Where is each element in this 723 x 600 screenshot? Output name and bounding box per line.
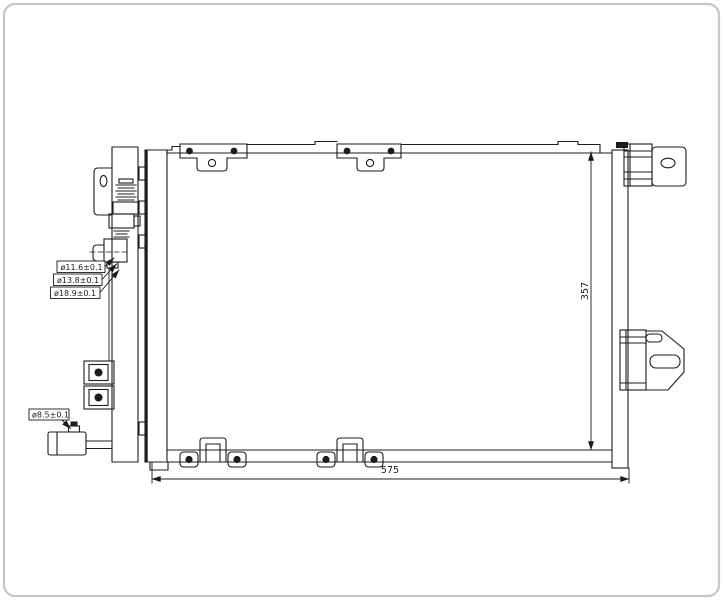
- elbow-port: [93, 245, 104, 261]
- port-hole-dot: [95, 394, 103, 402]
- mounting-hole-dot: [185, 456, 192, 463]
- left-header-tank: [139, 150, 168, 470]
- oval-hole: [100, 175, 107, 186]
- port-label-drier: ø8.5±0.1: [29, 409, 71, 429]
- port-diameter-label: ø18.9±0.1: [54, 289, 96, 298]
- drier-link: [86, 441, 112, 449]
- bottom-clip-right: [317, 438, 383, 467]
- thread-lines: [114, 231, 129, 237]
- bracket-slot: [650, 355, 680, 368]
- dimension-height: 357: [580, 152, 591, 450]
- mounting-hole-dot: [233, 456, 240, 463]
- mounting-hole-dot: [186, 148, 193, 155]
- width-value: 575: [381, 465, 399, 476]
- condenser-technical-drawing: ø11.6±0.1 ø13.8±0.1 ø18.9±0.1 ø8.5±0.1 3…: [0, 0, 723, 600]
- block-fitting-lower: [84, 386, 114, 409]
- block-fitting-upper: [84, 361, 114, 384]
- tab-hole: [208, 159, 215, 166]
- mounting-hole-dot: [370, 456, 377, 463]
- mounting-hole-dot: [322, 456, 329, 463]
- port-diameter-label: ø8.5±0.1: [32, 411, 69, 420]
- oval-slot: [661, 158, 675, 168]
- bracket-pin: [646, 334, 662, 342]
- receiver-drier: [48, 422, 112, 456]
- mounting-tab-oval: [94, 168, 112, 215]
- leader-line: [100, 270, 119, 293]
- bottom-clip-left: [180, 438, 246, 467]
- tank-foot: [145, 462, 168, 470]
- condenser-core: [167, 153, 612, 462]
- mounting-bracket-top-right: [616, 142, 686, 186]
- tab-hole: [366, 159, 373, 166]
- mounting-hole-dot: [344, 148, 351, 155]
- mounting-bracket-top-left: [180, 144, 247, 171]
- dimension-width: 575: [152, 462, 629, 483]
- right-header-tank: [612, 150, 628, 468]
- inlet-fitting: [113, 179, 139, 214]
- mounting-bracket-mid-right: [620, 330, 684, 390]
- port-diameter-label: ø13.8±0.1: [57, 276, 99, 285]
- mounting-bracket-top-center: [337, 144, 401, 171]
- thread-lines: [116, 185, 136, 200]
- drier-port-cap: [71, 422, 78, 427]
- port-hole-dot: [95, 369, 103, 377]
- port-diameter-label: ø11.6±0.1: [61, 263, 103, 272]
- leader-line: [62, 420, 71, 429]
- port-label-small: ø11.6±0.1: [57, 258, 114, 273]
- height-value: 357: [580, 282, 591, 300]
- mounting-hole-dot: [388, 148, 395, 155]
- mounting-hole-dot: [231, 148, 238, 155]
